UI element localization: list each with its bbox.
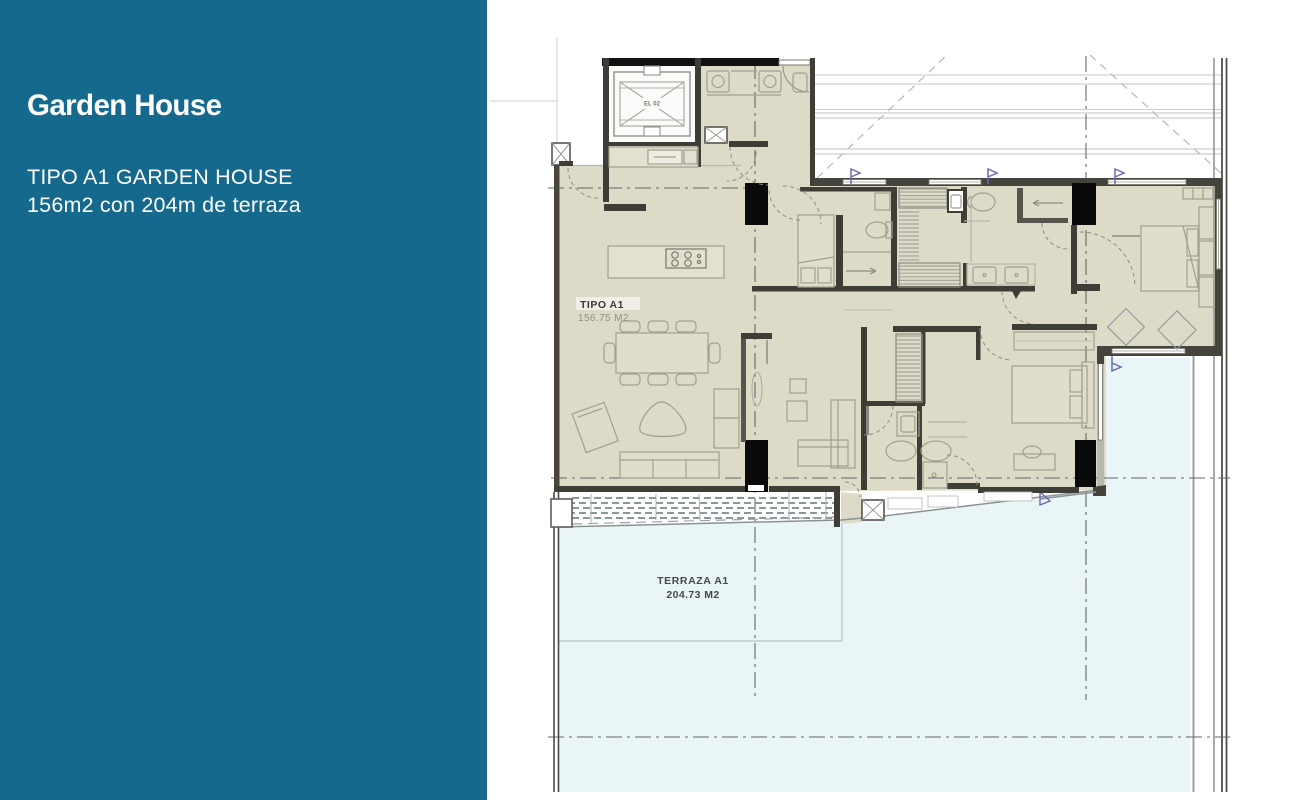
svg-text:204.73 M2: 204.73 M2	[666, 589, 719, 601]
svg-text:156.75 M2: 156.75 M2	[578, 313, 629, 324]
svg-text:TIPO A1: TIPO A1	[580, 299, 624, 311]
svg-text:EL 02: EL 02	[644, 102, 661, 108]
svg-text:TERRAZA A1: TERRAZA A1	[657, 575, 729, 587]
